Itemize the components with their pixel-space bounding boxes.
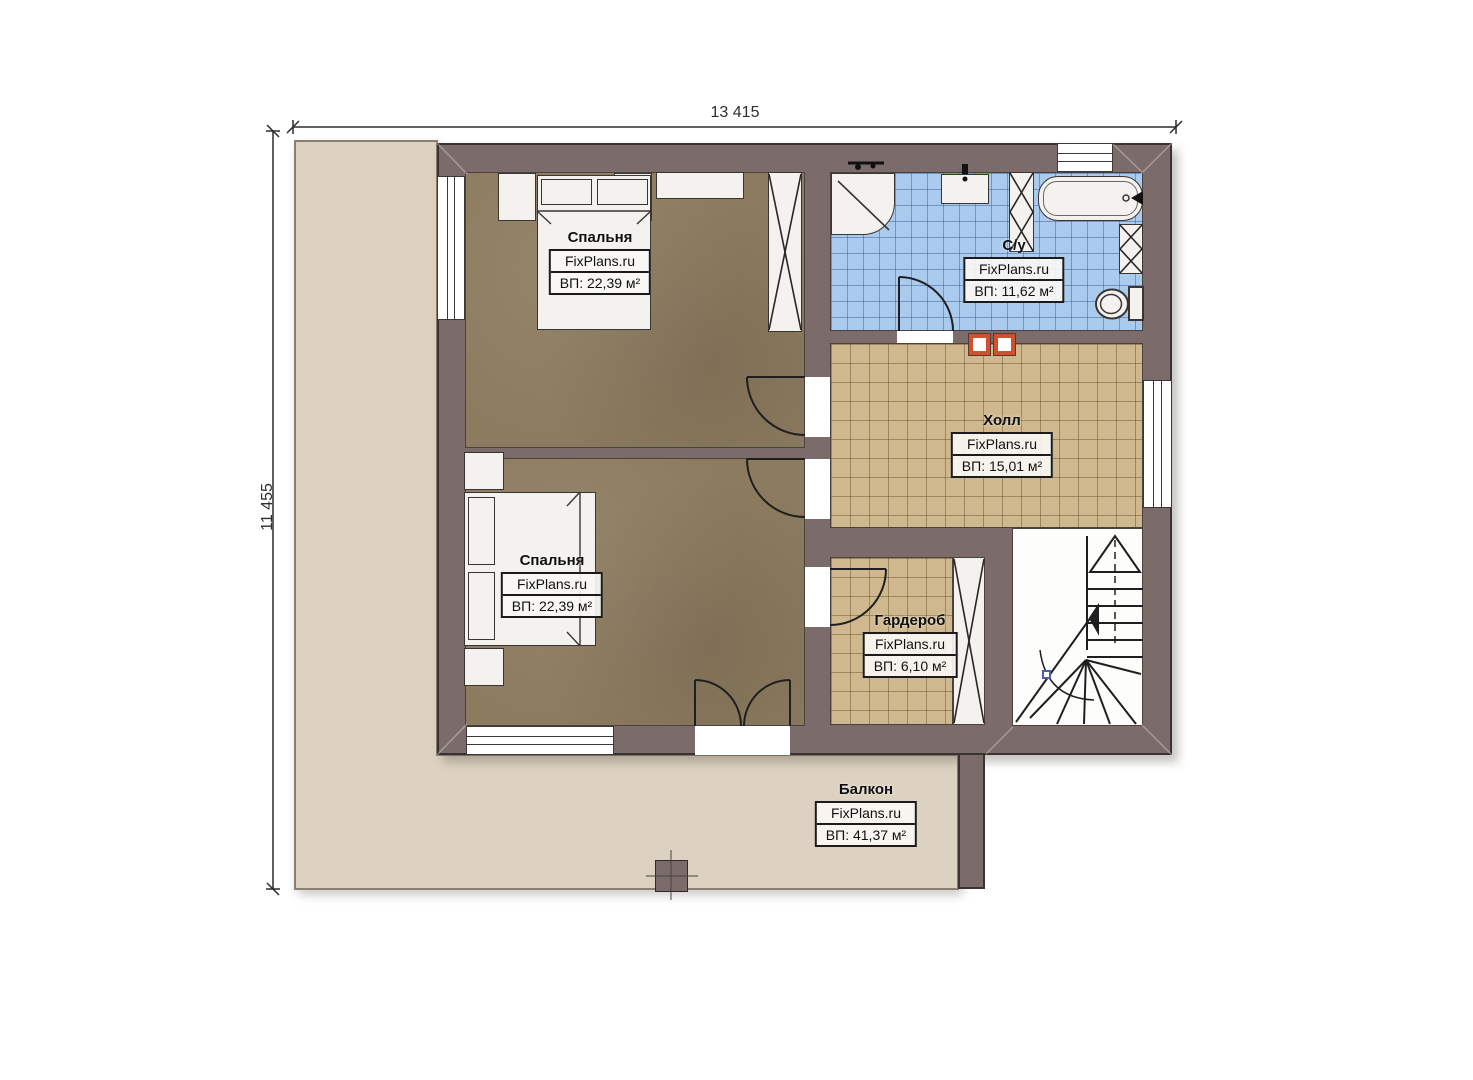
room-info-box: FixPlans.ru ВП: 41,37 м² [815, 801, 917, 847]
shower-icon [831, 173, 895, 235]
room-area: ВП: 22,39 м² [503, 594, 601, 616]
room-name: Балкон [815, 781, 917, 798]
stairwell-floor [1012, 528, 1143, 726]
bath-cabinet-icon [1119, 224, 1143, 274]
brand-watermark: FixPlans.ru [817, 803, 915, 823]
floor-plan-canvas: 13 415 11 455 Спальня FixPlans.ru ВП: 22… [0, 0, 1473, 1080]
dimension-left: 11 455 [259, 467, 277, 547]
room-name: С/у [963, 237, 1064, 254]
pillow-icon [468, 572, 495, 640]
sink-icon [941, 174, 989, 204]
brand-watermark: FixPlans.ru [503, 574, 601, 594]
window-hall-right [1143, 380, 1172, 508]
room-label-wardrobe: Гардероб FixPlans.ru ВП: 6,10 м² [863, 612, 958, 678]
room-info-box: FixPlans.ru ВП: 15,01 м² [951, 432, 1053, 478]
brand-watermark: FixPlans.ru [865, 634, 956, 654]
brand-watermark: FixPlans.ru [953, 434, 1051, 454]
room-label-bedroom-2: Спальня FixPlans.ru ВП: 22,39 м² [501, 552, 603, 618]
room-label-hall: Холл FixPlans.ru ВП: 15,01 м² [951, 412, 1053, 478]
room-name: Спальня [501, 552, 603, 569]
room-info-box: FixPlans.ru ВП: 22,39 м² [501, 572, 603, 618]
room-info-box: FixPlans.ru ВП: 22,39 м² [549, 249, 651, 295]
room-area: ВП: 11,62 м² [965, 279, 1062, 301]
room-name: Холл [951, 412, 1053, 429]
room-label-bedroom-1: Спальня FixPlans.ru ВП: 22,39 м² [549, 229, 651, 295]
balcony-column [655, 860, 688, 892]
room-label-bathroom: С/у FixPlans.ru ВП: 11,62 м² [963, 237, 1064, 303]
window-bedroom-1-left [437, 176, 465, 320]
brand-watermark: FixPlans.ru [551, 251, 649, 271]
wardrobe-cabinet-icon [768, 172, 802, 332]
room-info-box: FixPlans.ru ВП: 6,10 м² [863, 632, 958, 678]
room-info-box: FixPlans.ru ВП: 11,62 м² [963, 257, 1064, 303]
brand-watermark: FixPlans.ru [965, 259, 1062, 279]
bathtub-rim [1043, 181, 1138, 216]
room-label-balcony: Балкон FixPlans.ru ВП: 41,37 м² [815, 781, 917, 847]
bathtub-icon [1038, 176, 1143, 221]
pillow-icon [541, 179, 592, 205]
window-bathroom-top [1057, 143, 1113, 172]
room-name: Гардероб [863, 612, 958, 629]
room-area: ВП: 6,10 м² [865, 654, 956, 676]
wardrobe-door-opening [805, 567, 830, 627]
nightstand-icon [464, 648, 504, 686]
bedroom-1-door-opening [805, 377, 830, 437]
balcony-door-opening [695, 726, 790, 755]
room-area: ВП: 41,37 м² [817, 823, 915, 845]
window-bedroom-2-bottom [466, 726, 614, 755]
pillow-icon [468, 497, 495, 565]
bathroom-door-opening [897, 331, 953, 343]
room-name: Спальня [549, 229, 651, 246]
room-area: ВП: 15,01 м² [953, 454, 1051, 476]
bedroom-2-door-opening [805, 459, 830, 519]
wardrobe-closet-strip [953, 557, 985, 725]
balcony-side-wall [958, 753, 985, 889]
dresser-icon [656, 172, 744, 199]
dimension-top: 13 415 [675, 104, 795, 122]
nightstand-icon [498, 173, 536, 221]
vent-shaft-icon [994, 334, 1015, 355]
room-area: ВП: 22,39 м² [551, 271, 649, 293]
vent-shaft-icon [969, 334, 990, 355]
pillow-icon [597, 179, 648, 205]
nightstand-icon [464, 452, 504, 490]
